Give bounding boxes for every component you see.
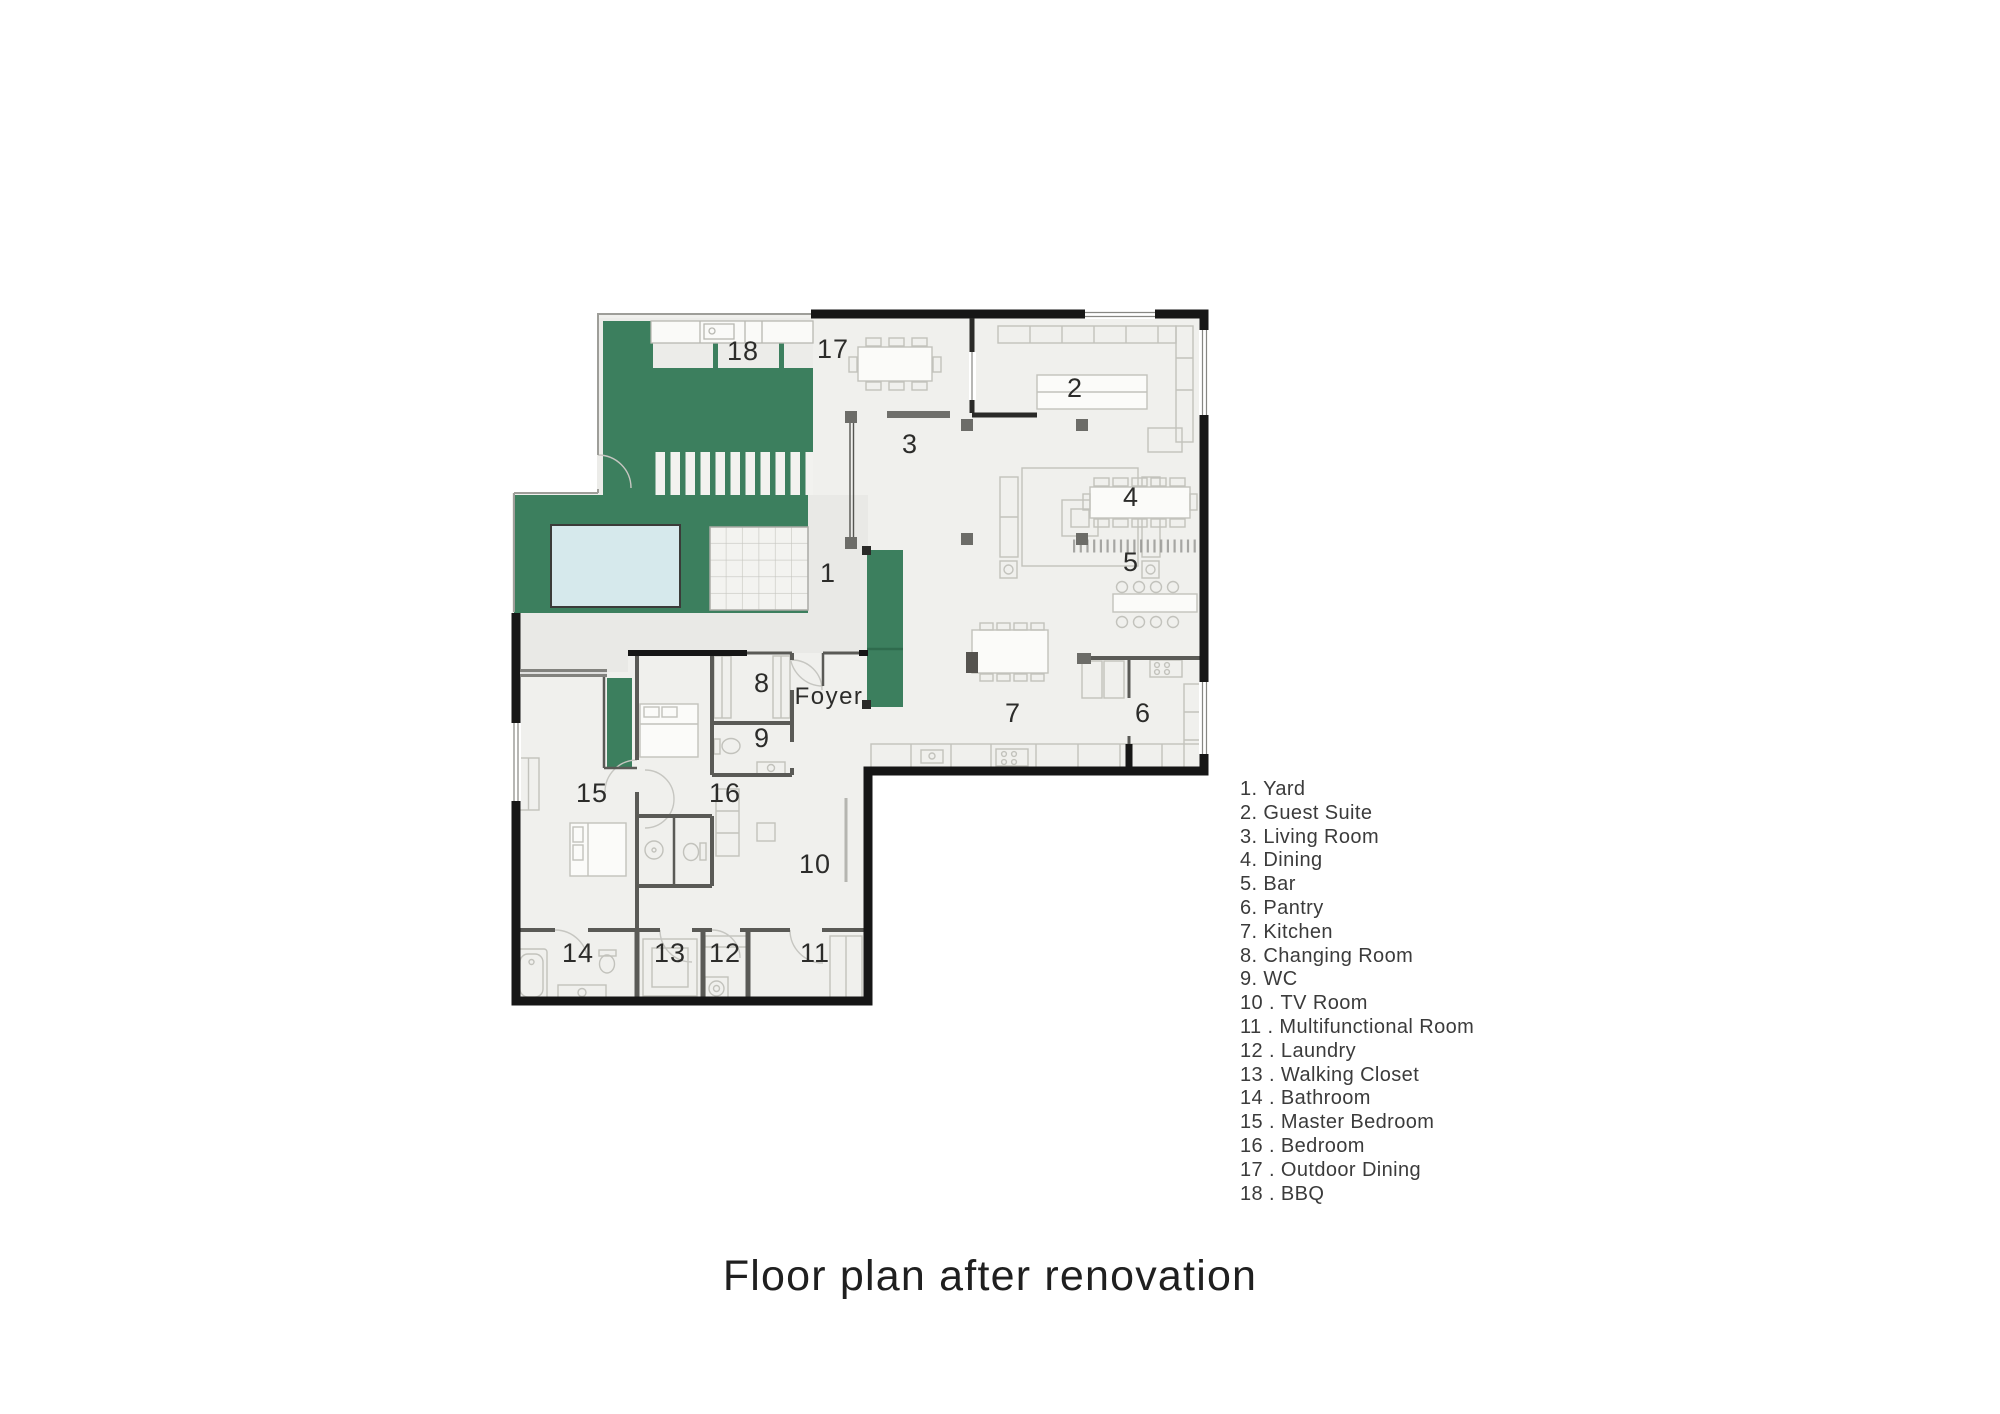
page: { "title": "Floor plan after renovation"…	[0, 0, 2000, 1414]
room-label-4: 4	[1123, 482, 1139, 512]
deck-slats	[653, 452, 813, 495]
legend-item-14: 14 . Bathroom	[1240, 1087, 1474, 1111]
legend-item-2: 2. Guest Suite	[1240, 802, 1474, 826]
legend-item-13: 13 . Walking Closet	[1240, 1064, 1474, 1088]
outdoor-dining-table	[858, 347, 932, 381]
legend-item-3: 3. Living Room	[1240, 826, 1474, 850]
room-label-10: 10	[799, 849, 831, 879]
legend-item-11: 11 . Multifunctional Room	[1240, 1016, 1474, 1040]
legend-item-5: 5. Bar	[1240, 873, 1474, 897]
legend-item-1: 1. Yard	[1240, 778, 1474, 802]
room-label-6: 6	[1135, 698, 1151, 728]
legend-item-17: 17 . Outdoor Dining	[1240, 1159, 1474, 1183]
legend-item-6: 6. Pantry	[1240, 897, 1474, 921]
green-separator	[779, 343, 784, 368]
planter-foyer	[867, 550, 903, 707]
legend: 1. Yard 2. Guest Suite 3. Living Room 4.…	[1240, 778, 1474, 1206]
yard-corridor-floor	[808, 495, 868, 613]
plan-title: Floor plan after renovation	[723, 1252, 1257, 1301]
legend-item-10: 10 . TV Room	[1240, 992, 1474, 1016]
kitchen-island	[972, 630, 1048, 673]
room-label-9: 9	[754, 723, 770, 753]
foyer-label: Foyer	[795, 683, 864, 710]
terrace-sill	[887, 411, 950, 418]
room-label-1: 1	[820, 558, 836, 588]
legend-item-4: 4. Dining	[1240, 849, 1474, 873]
room-label-11: 11	[800, 938, 830, 968]
walkway-floor	[512, 613, 868, 653]
room-label-16: 16	[709, 778, 741, 808]
green-deck-block	[653, 368, 813, 452]
legend-item-18: 18 . BBQ	[1240, 1183, 1474, 1207]
bar-counter	[1113, 594, 1197, 612]
legend-item-8: 8. Changing Room	[1240, 945, 1474, 969]
floor-plan: 1 2 3 4 5 6 7 8 9 10 11 12 13 14 15 16 1…	[0, 0, 2000, 1414]
legend-item-9: 9. WC	[1240, 968, 1474, 992]
room-label-14: 14	[562, 938, 594, 968]
room-label-8: 8	[754, 668, 770, 698]
room-label-3: 3	[902, 429, 918, 459]
paving-grid	[710, 527, 808, 610]
room-label-15: 15	[576, 778, 608, 808]
dining-table	[1090, 487, 1190, 518]
green-bbq-block	[603, 321, 653, 452]
room-label-18: 18	[727, 336, 759, 366]
green-separator	[713, 343, 718, 368]
legend-item-15: 15 . Master Bedroom	[1240, 1111, 1474, 1135]
planter-west	[607, 678, 632, 768]
legend-item-16: 16 . Bedroom	[1240, 1135, 1474, 1159]
room-label-17: 17	[817, 334, 849, 364]
room-label-12: 12	[709, 938, 741, 968]
room-label-13: 13	[654, 938, 686, 968]
room-label-5: 5	[1123, 547, 1139, 577]
bed	[640, 704, 698, 757]
room-label-2: 2	[1067, 373, 1083, 403]
room-label-7: 7	[1005, 698, 1021, 728]
legend-item-12: 12 . Laundry	[1240, 1040, 1474, 1064]
legend-item-7: 7. Kitchen	[1240, 921, 1474, 945]
bed	[570, 823, 626, 876]
pool	[551, 525, 680, 607]
